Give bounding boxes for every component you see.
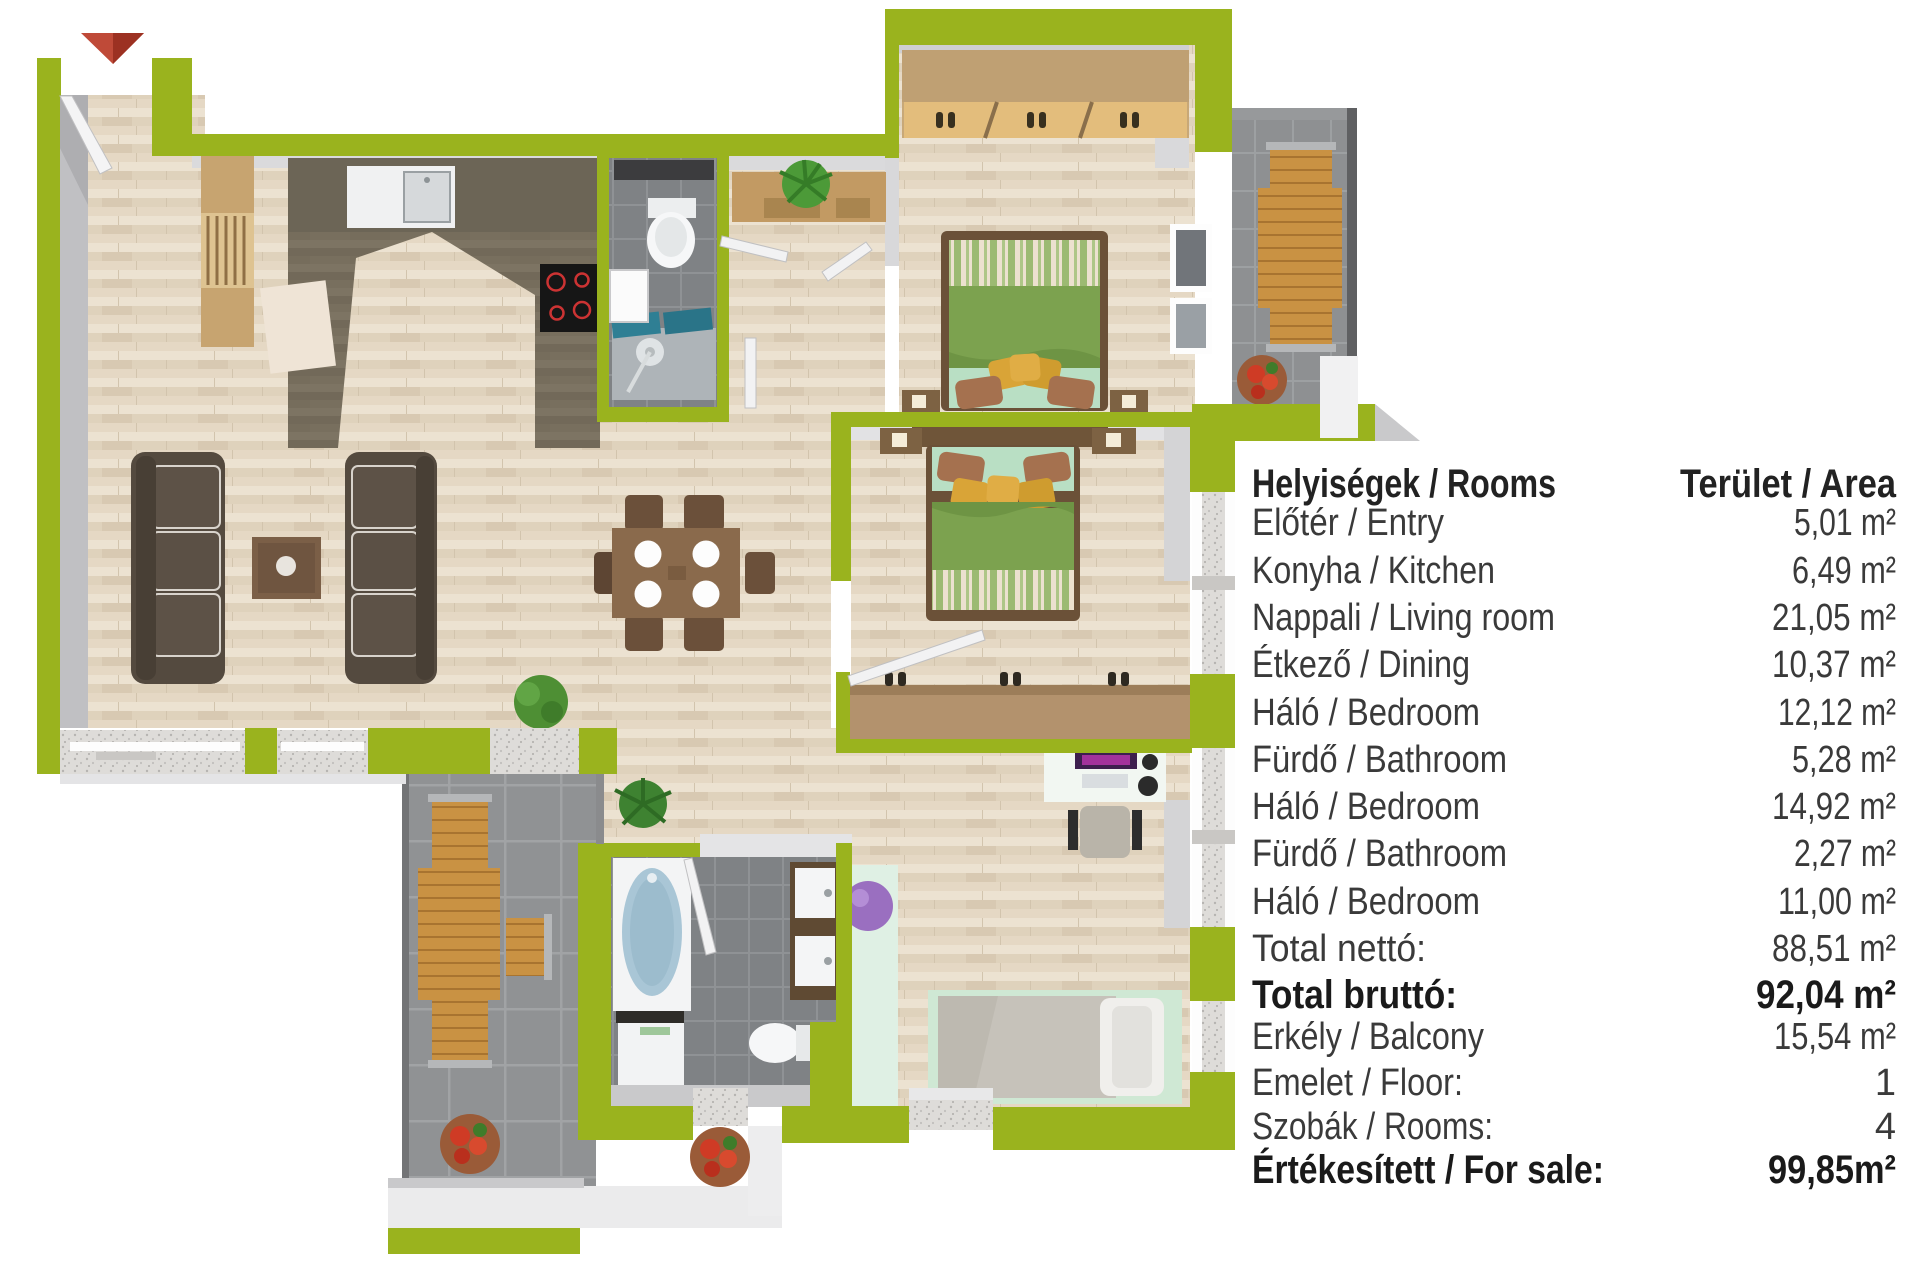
svg-text:21,05 m²: 21,05 m² xyxy=(1772,597,1896,639)
svg-text:15,54 m²: 15,54 m² xyxy=(1774,1016,1896,1058)
svg-text:Előtér / Entry: Előtér / Entry xyxy=(1252,502,1444,544)
svg-text:12,12 m²: 12,12 m² xyxy=(1778,692,1896,734)
svg-text:14,92 m²: 14,92 m² xyxy=(1772,786,1896,828)
svg-text:92,04 m²: 92,04 m² xyxy=(1756,973,1896,1017)
svg-text:Total nettó:: Total nettó: xyxy=(1252,928,1426,970)
svg-text:Nappali / Living room: Nappali / Living room xyxy=(1252,597,1555,639)
svg-text:5,28 m²: 5,28 m² xyxy=(1792,739,1896,781)
svg-text:Total bruttó:: Total bruttó: xyxy=(1252,973,1457,1017)
svg-text:Terület / Area: Terület / Area xyxy=(1680,462,1897,506)
svg-text:Értékesített / For sale:: Értékesített / For sale: xyxy=(1252,1147,1604,1192)
svg-text:1: 1 xyxy=(1875,1062,1896,1104)
svg-text:Szobák / Rooms:: Szobák / Rooms: xyxy=(1252,1106,1493,1148)
svg-text:Emelet / Floor:: Emelet / Floor: xyxy=(1252,1062,1463,1104)
svg-text:Étkező / Dining: Étkező / Dining xyxy=(1252,643,1470,686)
svg-text:Fürdő / Bathroom: Fürdő / Bathroom xyxy=(1252,739,1507,781)
svg-text:Háló / Bedroom: Háló / Bedroom xyxy=(1252,786,1480,828)
svg-text:5,01 m²: 5,01 m² xyxy=(1794,502,1896,544)
svg-text:Háló / Bedroom: Háló / Bedroom xyxy=(1252,692,1480,734)
svg-text:4: 4 xyxy=(1875,1106,1896,1148)
svg-text:11,00 m²: 11,00 m² xyxy=(1778,881,1896,923)
svg-text:99,85m²: 99,85m² xyxy=(1768,1148,1896,1192)
svg-text:2,27 m²: 2,27 m² xyxy=(1794,833,1896,875)
svg-text:Erkély / Balcony: Erkély / Balcony xyxy=(1252,1016,1484,1058)
svg-text:6,49 m²: 6,49 m² xyxy=(1792,550,1896,592)
svg-text:Háló / Bedroom: Háló / Bedroom xyxy=(1252,881,1480,923)
svg-text:Konyha / Kitchen: Konyha / Kitchen xyxy=(1252,550,1495,592)
svg-text:10,37 m²: 10,37 m² xyxy=(1772,644,1896,686)
svg-text:Helyiségek / Rooms: Helyiségek / Rooms xyxy=(1252,462,1556,506)
svg-text:Fürdő / Bathroom: Fürdő / Bathroom xyxy=(1252,833,1507,875)
svg-text:88,51 m²: 88,51 m² xyxy=(1772,928,1896,970)
